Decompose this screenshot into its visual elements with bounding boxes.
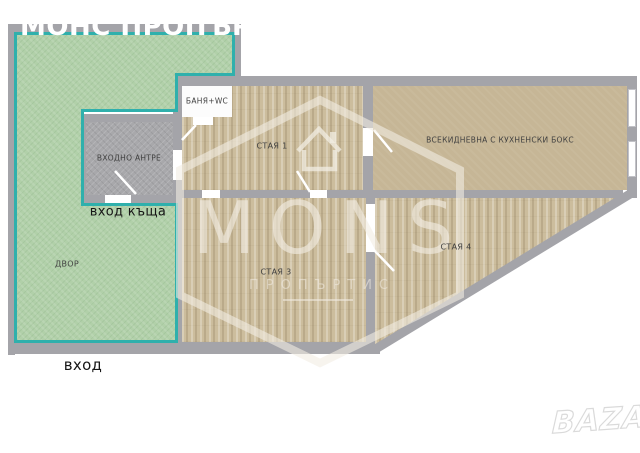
- label-bathroom: БАНЯ+WC: [186, 97, 228, 106]
- wall-corridor-b: [220, 190, 310, 198]
- door-opening-living-room1: [363, 128, 373, 156]
- wall-yard-left: [8, 24, 15, 355]
- door-opening-hall-room3: [202, 190, 220, 198]
- label-living: ВСЕКИДНЕВНА С КУХНЕНСКИ БОКС: [426, 136, 574, 145]
- label-yard: ДВОР: [55, 260, 79, 269]
- wall-antre-top: [78, 114, 178, 122]
- wall-corridor-a: [173, 190, 202, 198]
- agency-title: МОНС ПРОПЪРТИС: [20, 12, 312, 42]
- window-right-upper: [628, 89, 636, 127]
- window-right-lower: [628, 141, 636, 177]
- floor-plan: MONS ПРОПЪРТИС ДВОР ВХОДНО АНТРЕ БАНЯ+WC…: [0, 0, 640, 453]
- label-entrance: вход: [64, 356, 102, 374]
- door-opening-room1: [310, 190, 327, 198]
- door-opening-antre-right: [173, 150, 182, 180]
- wall-center-vert-upper-b: [363, 156, 373, 198]
- wall-center-vert-lower: [366, 252, 375, 346]
- door-opening-antre: [105, 195, 131, 203]
- label-room1: СТАЯ 1: [257, 142, 288, 151]
- label-entry-hall: ВХОДНО АНТРЕ: [97, 154, 161, 163]
- label-room3: СТАЯ 3: [261, 268, 292, 277]
- label-room4: СТАЯ 4: [441, 243, 472, 252]
- door-opening-room3-room4: [366, 204, 375, 252]
- door-opening-bathroom: [193, 117, 213, 125]
- room4-floor: [375, 198, 622, 345]
- wall-antre-bottom-b: [131, 195, 178, 203]
- bazar-logo: BAZAR: [552, 398, 640, 441]
- label-house-entrance: вход къща: [90, 205, 166, 220]
- wall-building-top: [173, 76, 637, 86]
- wall-bottom: [8, 342, 380, 354]
- wall-center-vert-upper-a: [363, 76, 373, 128]
